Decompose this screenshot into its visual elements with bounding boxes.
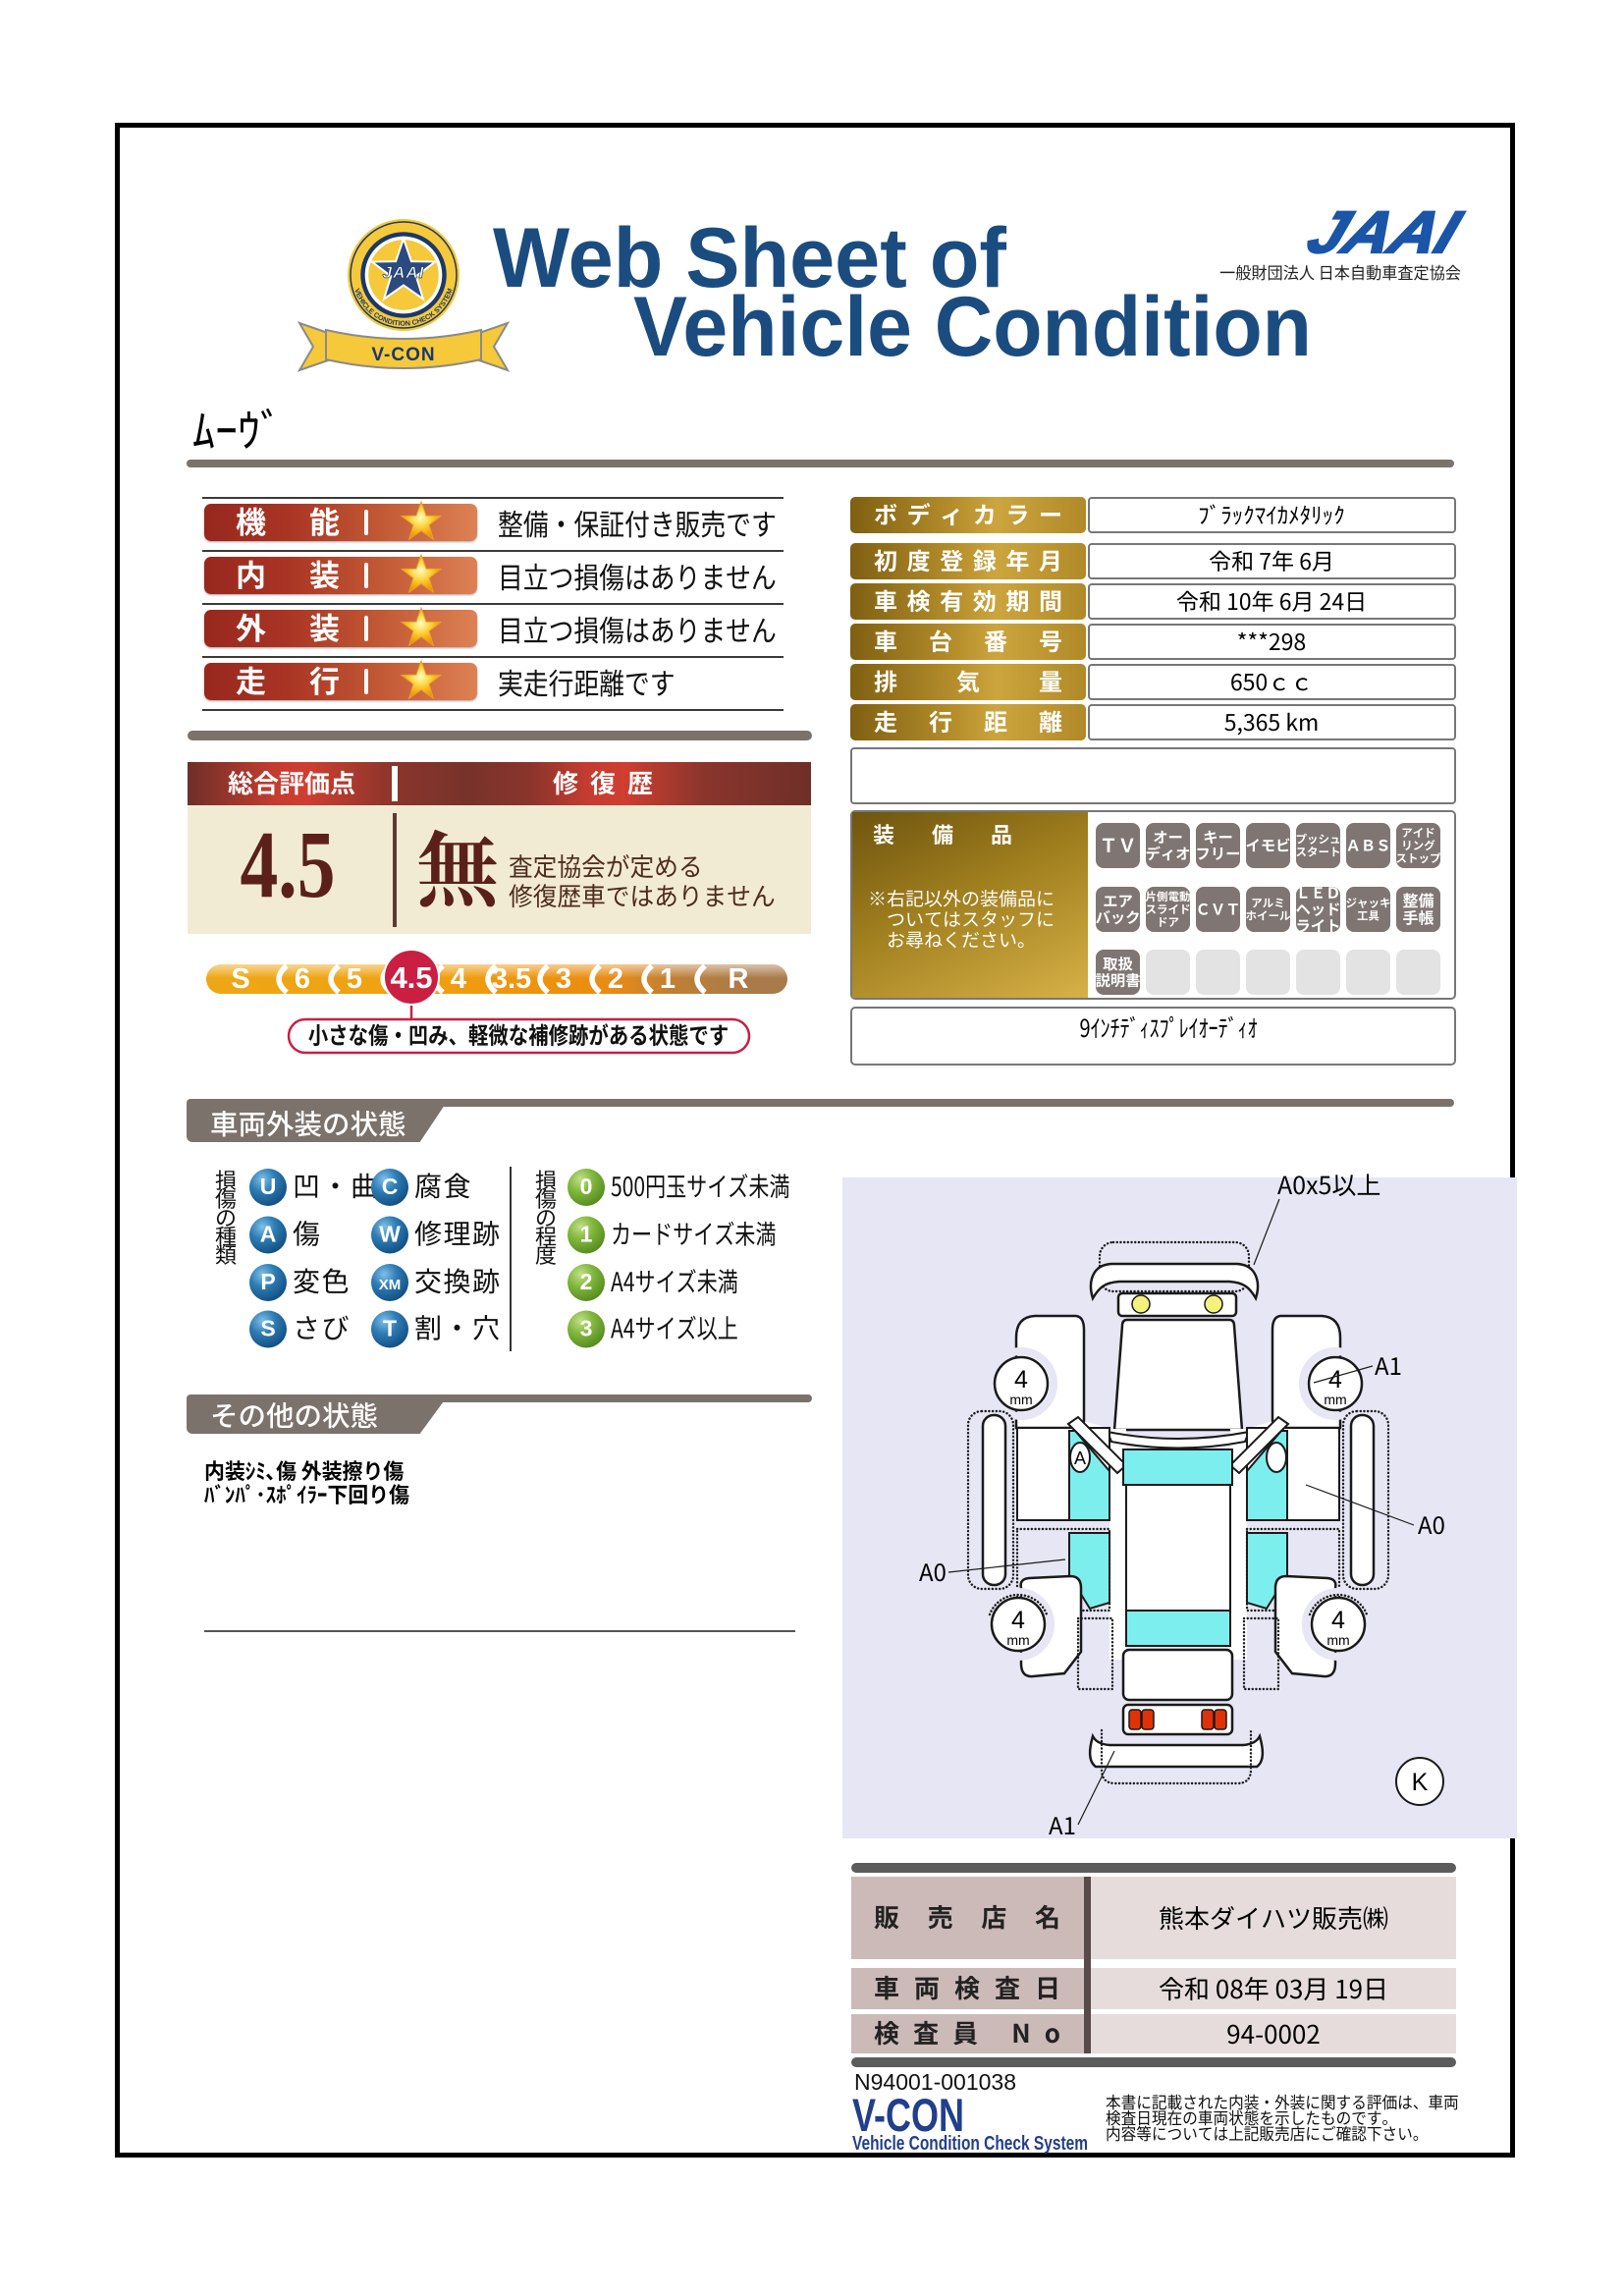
svg-text:3.5: 3.5 bbox=[492, 963, 531, 995]
svg-text:T: T bbox=[383, 1316, 397, 1341]
svg-text:4.5: 4.5 bbox=[241, 812, 336, 917]
svg-text:4: 4 bbox=[1331, 1607, 1345, 1634]
svg-text:5: 5 bbox=[347, 963, 362, 995]
svg-text:W: W bbox=[379, 1222, 401, 1247]
svg-text:mm: mm bbox=[1324, 1392, 1346, 1407]
svg-text:A: A bbox=[260, 1222, 277, 1247]
svg-text:2: 2 bbox=[580, 1269, 593, 1294]
svg-text:S: S bbox=[231, 963, 249, 995]
svg-text:4: 4 bbox=[1328, 1366, 1342, 1394]
svg-text:JAAI: JAAI bbox=[383, 263, 425, 282]
svg-text:C: C bbox=[382, 1174, 399, 1199]
svg-text:R: R bbox=[729, 963, 749, 995]
svg-text:mm: mm bbox=[1006, 1632, 1029, 1648]
svg-text:0: 0 bbox=[580, 1174, 593, 1199]
svg-text:mm: mm bbox=[1326, 1632, 1349, 1648]
svg-text:U: U bbox=[260, 1174, 277, 1199]
svg-text:A: A bbox=[1074, 1449, 1086, 1468]
svg-text:4: 4 bbox=[1011, 1607, 1025, 1634]
svg-text:1: 1 bbox=[660, 963, 676, 995]
svg-text:4.5: 4.5 bbox=[390, 960, 432, 995]
svg-text:2: 2 bbox=[608, 963, 623, 995]
svg-text:S: S bbox=[260, 1316, 275, 1341]
svg-text:3: 3 bbox=[556, 963, 571, 995]
svg-text:K: K bbox=[1412, 1769, 1429, 1796]
svg-text:XM: XM bbox=[379, 1277, 402, 1293]
svg-text:Vehicle Condition: Vehicle Condition bbox=[633, 280, 1312, 374]
svg-text:P: P bbox=[260, 1269, 275, 1294]
svg-text:V-CON: V-CON bbox=[371, 345, 435, 365]
svg-text:6: 6 bbox=[295, 963, 310, 995]
svg-text:4: 4 bbox=[1014, 1366, 1028, 1394]
svg-text:1: 1 bbox=[580, 1222, 593, 1247]
svg-text:Vehicle Condition Check System: Vehicle Condition Check System bbox=[852, 2133, 1088, 2155]
svg-text:3: 3 bbox=[580, 1316, 593, 1341]
svg-text:4: 4 bbox=[451, 963, 466, 995]
svg-text:mm: mm bbox=[1009, 1392, 1032, 1407]
svg-text:JAAI: JAAI bbox=[1299, 200, 1470, 266]
